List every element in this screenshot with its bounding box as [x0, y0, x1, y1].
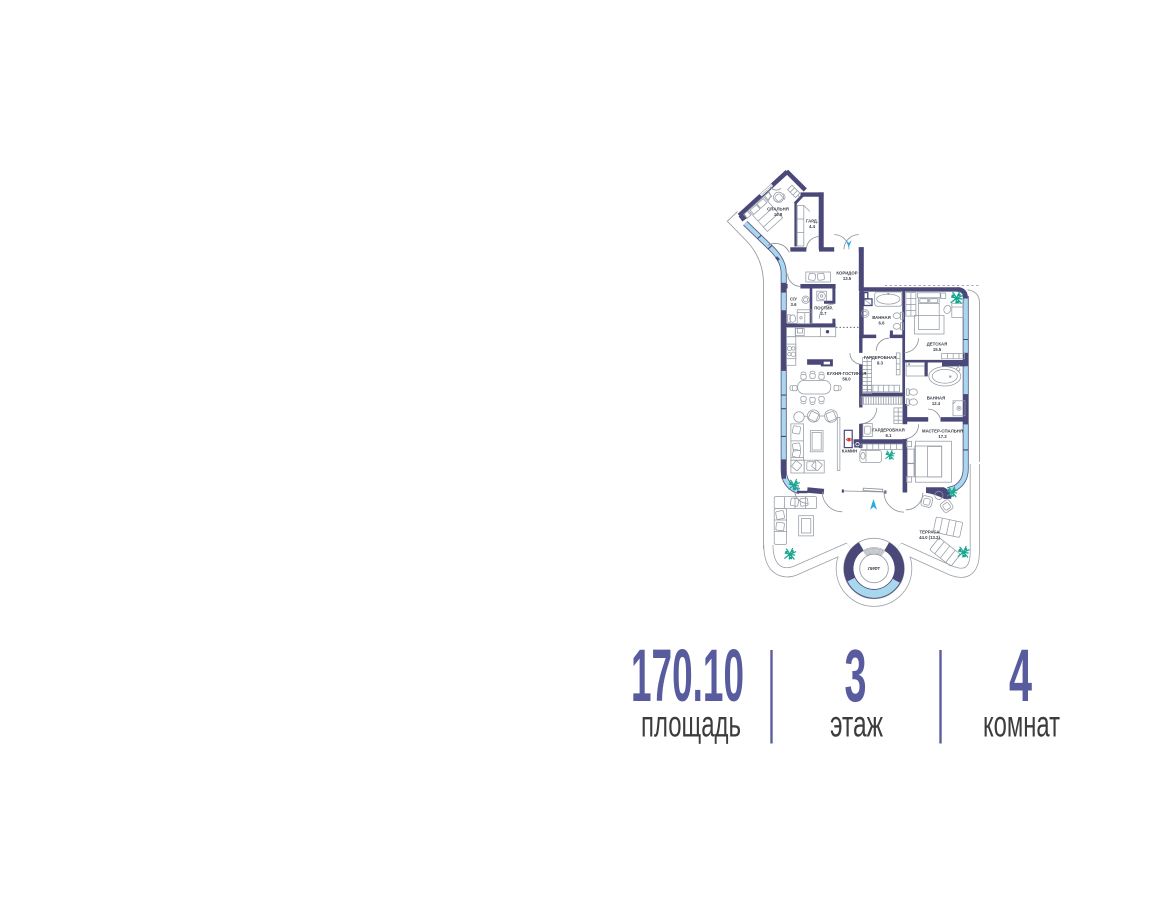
svg-text:13.5: 13.5 — [843, 276, 852, 281]
svg-text:С/У: С/У — [790, 297, 797, 302]
svg-text:6.6: 6.6 — [879, 321, 886, 326]
svg-text:ГАРДЕРОБНАЯ: ГАРДЕРОБНАЯ — [872, 428, 904, 433]
svg-text:комнат: комнат — [983, 704, 1060, 745]
svg-text:15.5: 15.5 — [933, 347, 942, 352]
svg-text:площадь: площадь — [641, 704, 741, 745]
svg-text:12.4: 12.4 — [932, 401, 941, 406]
svg-text:ТЕРРАСА: ТЕРРАСА — [920, 530, 940, 535]
svg-text:ПОСТИР.: ПОСТИР. — [814, 306, 833, 311]
svg-text:10.8: 10.8 — [774, 212, 783, 217]
svg-text:ВАННАЯ: ВАННАЯ — [872, 315, 890, 320]
svg-text:ГАРД.: ГАРД. — [806, 219, 818, 224]
svg-text:2.7: 2.7 — [821, 311, 828, 316]
svg-text:КУХНЯ-ГОСТИНАЯ: КУХНЯ-ГОСТИНАЯ — [827, 371, 867, 376]
svg-text:КАМИН: КАМИН — [842, 449, 858, 454]
svg-text:ВАННАЯ: ВАННАЯ — [927, 396, 945, 401]
svg-text:4.4: 4.4 — [809, 224, 816, 229]
svg-text:КОРИДОР: КОРИДОР — [836, 271, 857, 276]
svg-text:17.3: 17.3 — [938, 434, 947, 439]
svg-text:56.0: 56.0 — [842, 377, 851, 382]
svg-text:6.1: 6.1 — [886, 433, 893, 438]
svg-text:ГАРДЕРОБНАЯ: ГАРДЕРОБНАЯ — [864, 355, 896, 360]
svg-text:этаж: этаж — [830, 704, 883, 745]
svg-text:3.6: 3.6 — [791, 302, 798, 307]
svg-text:44.0 (13.2): 44.0 (13.2) — [919, 535, 940, 540]
svg-text:ДЕТСКАЯ: ДЕТСКАЯ — [927, 342, 947, 347]
svg-text:МАСТЕР-СПАЛЬНЯ: МАСТЕР-СПАЛЬНЯ — [922, 429, 963, 434]
svg-text:8.3: 8.3 — [877, 361, 884, 366]
svg-text:ЛИФТ: ЛИФТ — [868, 566, 881, 571]
svg-text:СПАЛЬНЯ: СПАЛЬНЯ — [767, 207, 789, 212]
